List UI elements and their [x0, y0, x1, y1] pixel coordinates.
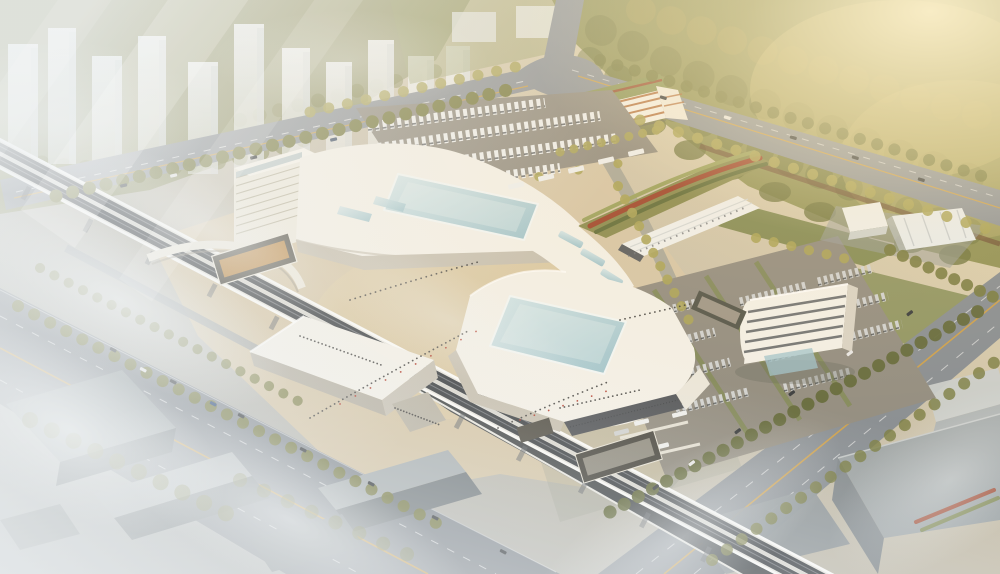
- aerial-render: Aerial architectural rendering of a high…: [0, 0, 1000, 574]
- sun-glare: [0, 0, 1000, 574]
- render-image: Aerial architectural rendering of a high…: [0, 0, 1000, 574]
- atmosphere: [0, 0, 1000, 574]
